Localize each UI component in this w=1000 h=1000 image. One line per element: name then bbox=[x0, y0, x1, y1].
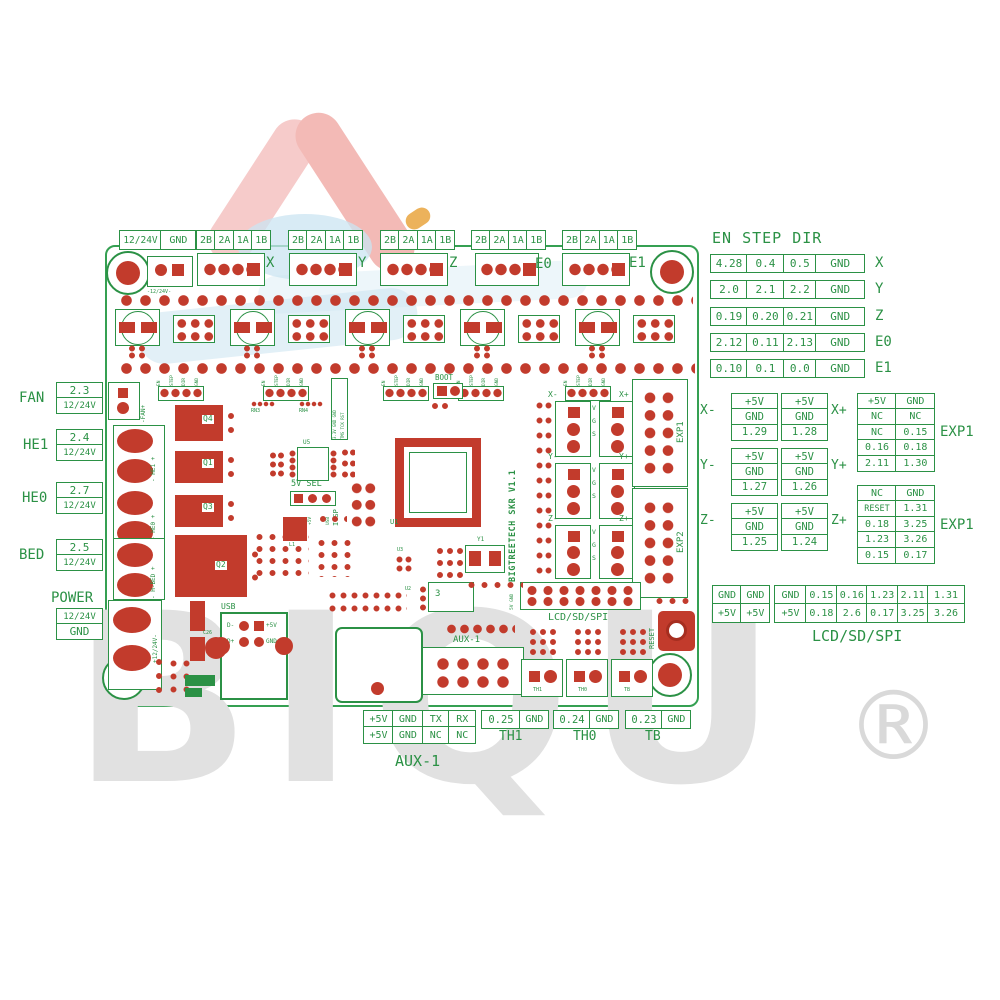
pin-cell: 1.23 bbox=[866, 585, 898, 605]
pin-cell: 0.17 bbox=[866, 603, 898, 623]
power-label: POWER bbox=[51, 591, 93, 606]
pin-cell: GND bbox=[815, 254, 865, 273]
fan-label: FAN bbox=[19, 391, 44, 406]
pin-cell: 1.31 bbox=[927, 585, 965, 605]
pin-cell: 2.0 bbox=[710, 280, 748, 299]
pin-cell: 0.16 bbox=[836, 585, 868, 605]
pin-cell: 1.27 bbox=[731, 479, 778, 496]
axis-label-x: X bbox=[266, 256, 274, 271]
motor-pin-table-e0: 2B 2A 1A 1B bbox=[471, 230, 546, 250]
pin-cell: 1B bbox=[343, 230, 363, 250]
pin-cell: 12/24V bbox=[56, 554, 103, 571]
pin-cell: 0.21 bbox=[783, 307, 817, 326]
pin-cell: GND bbox=[519, 710, 549, 729]
pin-cell: 2A bbox=[580, 230, 600, 250]
pin-cell: 1.24 bbox=[781, 534, 828, 551]
pin-cell: 1A bbox=[508, 230, 528, 250]
esd-axis: X bbox=[875, 256, 883, 271]
pin-cell: +5V bbox=[363, 710, 394, 728]
esd-row-y: 2.0 2.1 2.2 GND bbox=[710, 280, 865, 299]
esd-axis: E0 bbox=[875, 335, 892, 350]
top-power-table: 12/24V GND bbox=[119, 230, 196, 250]
pin-cell: 1.25 bbox=[731, 534, 778, 551]
pin-cell: 12/24V bbox=[56, 397, 103, 414]
pin-cell: 3.26 bbox=[927, 603, 965, 623]
exp1-table: +5VGND NCNC NC0.15 0.160.18 2.111.30 bbox=[857, 393, 935, 472]
esd-axis: Z bbox=[875, 309, 883, 324]
bed-label: BED bbox=[19, 548, 44, 563]
endstop-x-plus-table: +5V GND 1.28 bbox=[781, 393, 828, 441]
pin-cell: 2B bbox=[288, 230, 308, 250]
pin-cell: GND bbox=[160, 230, 196, 250]
pin-cell: 1A bbox=[233, 230, 253, 250]
th1-table: 0.25 GND bbox=[481, 710, 549, 729]
pin-cell: 0.23 bbox=[625, 710, 663, 729]
pin-cell: 2.12 bbox=[710, 333, 748, 352]
pin-cell: 2A bbox=[306, 230, 326, 250]
pinout-labels-layer: 12/24V GND 2B 2A 1A 1B 2B 2A 1A 1B 2B 2A… bbox=[0, 0, 1000, 1000]
pin-cell: 1B bbox=[251, 230, 271, 250]
motor-pin-table-y: 2B 2A 1A 1B bbox=[288, 230, 363, 250]
esd-row-e0: 2.12 0.11 2.13 GND bbox=[710, 333, 865, 352]
pin-cell: 1A bbox=[599, 230, 619, 250]
pin-cell: GND bbox=[774, 585, 807, 605]
pin-cell: +5V bbox=[740, 603, 770, 623]
pin-cell: 12/24V bbox=[56, 497, 103, 514]
pin-cell: GND bbox=[815, 359, 865, 378]
exp1-label: EXP1 bbox=[940, 425, 974, 440]
axis-label-y: Y bbox=[358, 256, 366, 271]
pcb-pinout-diagram: { "watermark": {"text": "BIQU", "registe… bbox=[0, 0, 1000, 1000]
pin-cell: +5V bbox=[363, 726, 394, 744]
pin-cell: +5V bbox=[712, 603, 742, 623]
pin-cell: 0.0 bbox=[783, 359, 817, 378]
pin-cell: 0.19 bbox=[710, 307, 748, 326]
pin-cell: 2B bbox=[562, 230, 582, 250]
pin-cell: 0.17 bbox=[895, 547, 935, 564]
pin-cell: 2B bbox=[471, 230, 491, 250]
endstop-y-plus-table: +5V GND 1.26 bbox=[781, 448, 828, 496]
he1-label: HE1 bbox=[23, 438, 48, 453]
endstop-z-minus-table: +5V GND 1.25 bbox=[731, 503, 778, 551]
aux1-table: +5V GND TX RX +5V GND NC NC bbox=[363, 710, 476, 744]
pin-cell: 12/24V bbox=[119, 230, 162, 250]
endstop-z-plus-table: +5V GND 1.24 bbox=[781, 503, 828, 551]
aux1-label: AUX-1 bbox=[395, 753, 440, 770]
pin-cell: 2.2 bbox=[783, 280, 817, 299]
axis-label-z: Z bbox=[449, 256, 457, 271]
pin-cell: GND bbox=[661, 710, 691, 729]
esd-row-z: 0.19 0.20 0.21 GND bbox=[710, 307, 865, 326]
pin-cell: 1A bbox=[417, 230, 437, 250]
th1-label: TH1 bbox=[499, 730, 522, 744]
pin-cell: NC bbox=[448, 726, 476, 744]
axis-label-e1: E1 bbox=[629, 256, 646, 271]
pin-cell: 1.26 bbox=[781, 479, 828, 496]
pin-cell: 0.5 bbox=[783, 254, 817, 273]
pin-cell: 2B bbox=[380, 230, 400, 250]
lcd-sd-spi-label: LCD/SD/SPI bbox=[812, 628, 902, 645]
he0-table: 2.7 12/24V bbox=[56, 482, 103, 514]
pin-cell: +5V bbox=[774, 603, 807, 623]
he1-table: 2.4 12/24V bbox=[56, 429, 103, 461]
en-step-dir-title: EN STEP DIR bbox=[712, 230, 822, 247]
pin-cell: 2A bbox=[398, 230, 418, 250]
endstop-y-plus-label: Y+ bbox=[831, 459, 847, 473]
endstop-y-minus-table: +5V GND 1.27 bbox=[731, 448, 778, 496]
pin-cell: 1A bbox=[325, 230, 345, 250]
lcd-main-table: GND 0.15 0.16 1.23 2.11 1.31 +5V 0.18 2.… bbox=[774, 585, 965, 623]
pin-cell: 0.10 bbox=[710, 359, 748, 378]
pin-cell: 2B bbox=[196, 230, 216, 250]
pin-cell: 0.15 bbox=[805, 585, 837, 605]
pin-cell: GND bbox=[740, 585, 770, 605]
pin-cell: 0.25 bbox=[481, 710, 521, 729]
esd-row-x: 4.28 0.4 0.5 GND bbox=[710, 254, 865, 273]
pin-cell: 3.25 bbox=[897, 603, 929, 623]
tb-label: TB bbox=[645, 730, 661, 744]
pin-cell: 12/24V bbox=[56, 444, 103, 461]
power-table: 12/24V GND bbox=[56, 608, 103, 640]
pin-cell: 1B bbox=[617, 230, 637, 250]
pin-cell: RX bbox=[448, 710, 476, 728]
pin-cell: 0.15 bbox=[857, 547, 897, 564]
esd-axis: Y bbox=[875, 282, 883, 297]
endstop-z-minus-label: Z- bbox=[700, 514, 716, 528]
pin-cell: 1.28 bbox=[781, 424, 828, 441]
pin-cell: GND bbox=[392, 726, 423, 744]
pin-cell: 0.20 bbox=[746, 307, 784, 326]
pin-cell: 0.24 bbox=[553, 710, 591, 729]
pin-cell: 0.18 bbox=[805, 603, 837, 623]
pin-cell: 1B bbox=[526, 230, 546, 250]
esd-row-e1: 0.10 0.1 0.0 GND bbox=[710, 359, 865, 378]
endstop-x-plus-label: X+ bbox=[831, 404, 847, 418]
pin-cell: TX bbox=[422, 710, 450, 728]
th0-table: 0.24 GND bbox=[553, 710, 619, 729]
motor-pin-table-e1: 2B 2A 1A 1B bbox=[562, 230, 637, 250]
bed-table: 2.5 12/24V bbox=[56, 539, 103, 571]
th0-label: TH0 bbox=[573, 730, 596, 744]
pin-cell: GND bbox=[815, 280, 865, 299]
pin-cell: 2A bbox=[214, 230, 234, 250]
pin-cell: NC bbox=[422, 726, 450, 744]
endstop-y-minus-label: Y- bbox=[700, 459, 716, 473]
pin-cell: GND bbox=[589, 710, 619, 729]
pin-cell: 2.11 bbox=[897, 585, 929, 605]
pin-cell: 2.1 bbox=[746, 280, 784, 299]
tb-table: 0.23 GND bbox=[625, 710, 691, 729]
pin-cell: GND bbox=[392, 710, 423, 728]
pin-cell: 2.13 bbox=[783, 333, 817, 352]
exp2-label: EXP1 bbox=[940, 518, 974, 533]
endstop-x-minus-label: X- bbox=[700, 404, 716, 418]
axis-label-e0: E0 bbox=[535, 257, 552, 272]
exp2-table: NCGND RESET1.31 0.183.25 1.233.26 0.150.… bbox=[857, 485, 935, 564]
esd-axis: E1 bbox=[875, 361, 892, 376]
pin-cell: 2A bbox=[489, 230, 509, 250]
pin-cell: GND bbox=[712, 585, 742, 605]
endstop-z-plus-label: Z+ bbox=[831, 514, 847, 528]
pin-cell: 2.11 bbox=[857, 455, 897, 472]
pin-cell: 0.11 bbox=[746, 333, 784, 352]
pin-cell: 0.1 bbox=[746, 359, 784, 378]
motor-pin-table-x: 2B 2A 1A 1B bbox=[196, 230, 271, 250]
motor-pin-table-z: 2B 2A 1A 1B bbox=[380, 230, 455, 250]
pin-cell: 1.29 bbox=[731, 424, 778, 441]
pin-cell: GND bbox=[815, 307, 865, 326]
pin-cell: 4.28 bbox=[710, 254, 748, 273]
endstop-x-minus-table: +5V GND 1.29 bbox=[731, 393, 778, 441]
pin-cell: GND bbox=[815, 333, 865, 352]
pin-cell: 1.30 bbox=[895, 455, 935, 472]
pin-cell: 0.4 bbox=[746, 254, 784, 273]
pin-cell: 1B bbox=[435, 230, 455, 250]
fan-table: 2.3 12/24V bbox=[56, 382, 103, 414]
he0-label: HE0 bbox=[22, 491, 47, 506]
pin-cell: GND bbox=[56, 623, 103, 640]
lcd-power-table: GNDGND +5V+5V bbox=[712, 585, 770, 623]
pin-cell: 2.6 bbox=[836, 603, 868, 623]
